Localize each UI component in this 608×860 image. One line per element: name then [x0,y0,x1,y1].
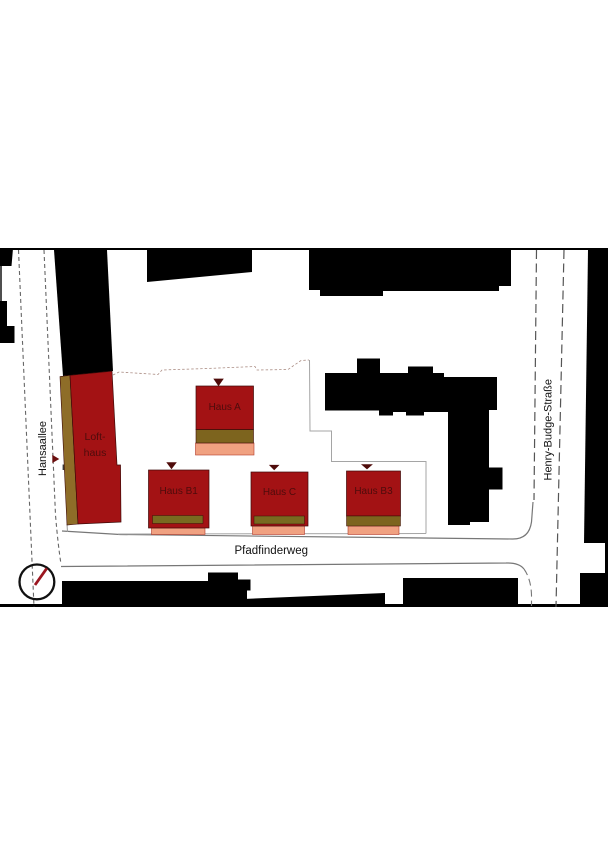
svg-text:Pfadfinderweg: Pfadfinderweg [235,545,309,557]
svg-text:Haus A: Haus A [209,402,242,413]
svg-text:haus: haus [84,447,107,459]
svg-text:Hansaallee: Hansaallee [37,421,49,476]
svg-text:Haus C: Haus C [263,487,296,498]
svg-text:Haus B3: Haus B3 [354,486,393,497]
svg-text:Henry-Budge-Straße: Henry-Budge-Straße [543,379,555,481]
svg-text:Haus B1: Haus B1 [160,486,199,497]
svg-text:Loft-: Loft- [84,431,106,443]
